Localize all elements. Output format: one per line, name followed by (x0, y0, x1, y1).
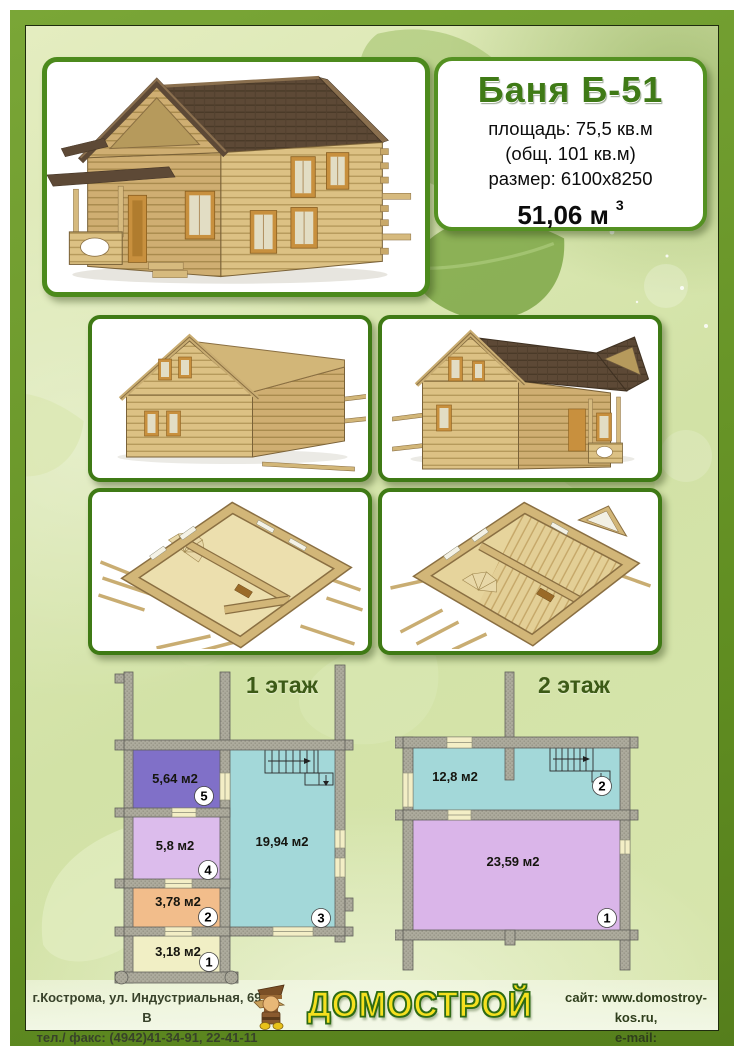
room-5-area: 5,64 м2 (152, 771, 198, 786)
room-1-badge: 1 (598, 909, 617, 928)
room-1-area: 3,18 м2 (155, 944, 201, 959)
room-3-badge: 3 (312, 909, 331, 928)
floor2-plan: 12,8 м2 23,59 м2 2 1 (395, 660, 645, 1000)
domostroy-logo: ДОМОСТРОЙ (294, 981, 546, 1030)
spec-total-area: (общ. 101 кв.м) (438, 141, 703, 166)
room-2-badge: 2 (199, 908, 218, 927)
spec-size: размер: 6100х8250 (438, 166, 703, 191)
floor1-plan: 5,64 м2 5,8 м2 3,78 м2 3,18 м2 19,94 м2 … (100, 660, 370, 1000)
svg-text:2: 2 (204, 910, 211, 925)
room-5-badge: 5 (195, 787, 214, 806)
footer-address: г.Кострома, ул. Индустриальная, 69 В тел… (32, 988, 262, 1048)
svg-text:4: 4 (204, 863, 212, 878)
room-2-badge: 2 (593, 777, 612, 796)
view-box-rear (88, 315, 372, 482)
content-area: Баня Б-51 площадь: 75,5 кв.м (общ. 101 к… (26, 26, 718, 1030)
svg-text:2: 2 (598, 779, 605, 794)
footer-contacts: сайт: www.domostroy-kos.ru, e-mail: domo… (548, 988, 724, 1052)
svg-text:1: 1 (205, 955, 212, 970)
room-1-area: 23,59 м2 (487, 854, 540, 869)
main-exterior-render (47, 62, 423, 290)
main-photo-box (42, 57, 430, 297)
model-name: Баня Б-51 (438, 69, 703, 111)
interior-floor2-render (382, 492, 656, 649)
view-box-interior-floor1 (88, 488, 372, 655)
side-view-render (382, 319, 656, 476)
email-line: e-mail: domostroy_kos@mail.ru (548, 1028, 724, 1052)
volume-value: 51,06 м3 (438, 197, 703, 231)
room-1 (413, 820, 620, 930)
room-1-badge: 1 (200, 953, 219, 972)
view-box-interior-floor2 (378, 488, 662, 655)
room-3-area: 19,94 м2 (256, 834, 309, 849)
poster-page: Баня Б-51 площадь: 75,5 кв.м (общ. 101 к… (0, 0, 744, 1052)
rear-view-render (92, 319, 366, 476)
room-2-area: 3,78 м2 (155, 894, 201, 909)
spec-area: площадь: 75,5 кв.м (438, 116, 703, 141)
svg-text:5: 5 (200, 789, 207, 804)
interior-floor1-render (92, 492, 366, 649)
view-box-side (378, 315, 662, 482)
address-line1: г.Кострома, ул. Индустриальная, 69 В (32, 988, 262, 1028)
site-line: сайт: www.domostroy-kos.ru, (548, 988, 724, 1028)
room-4-badge: 4 (199, 861, 218, 880)
room-4-area: 5,8 м2 (156, 838, 195, 853)
svg-text:3: 3 (317, 911, 324, 926)
domostroy-mascot-icon (250, 982, 294, 1030)
title-box: Баня Б-51 площадь: 75,5 кв.м (общ. 101 к… (434, 57, 707, 231)
svg-text:1: 1 (603, 911, 610, 926)
room-2-area: 12,8 м2 (432, 769, 478, 784)
address-line2: тел./ факс: (4942)41-34-91, 22-41-11 (32, 1028, 262, 1048)
page-border-frame: Баня Б-51 площадь: 75,5 кв.м (общ. 101 к… (10, 10, 734, 1046)
